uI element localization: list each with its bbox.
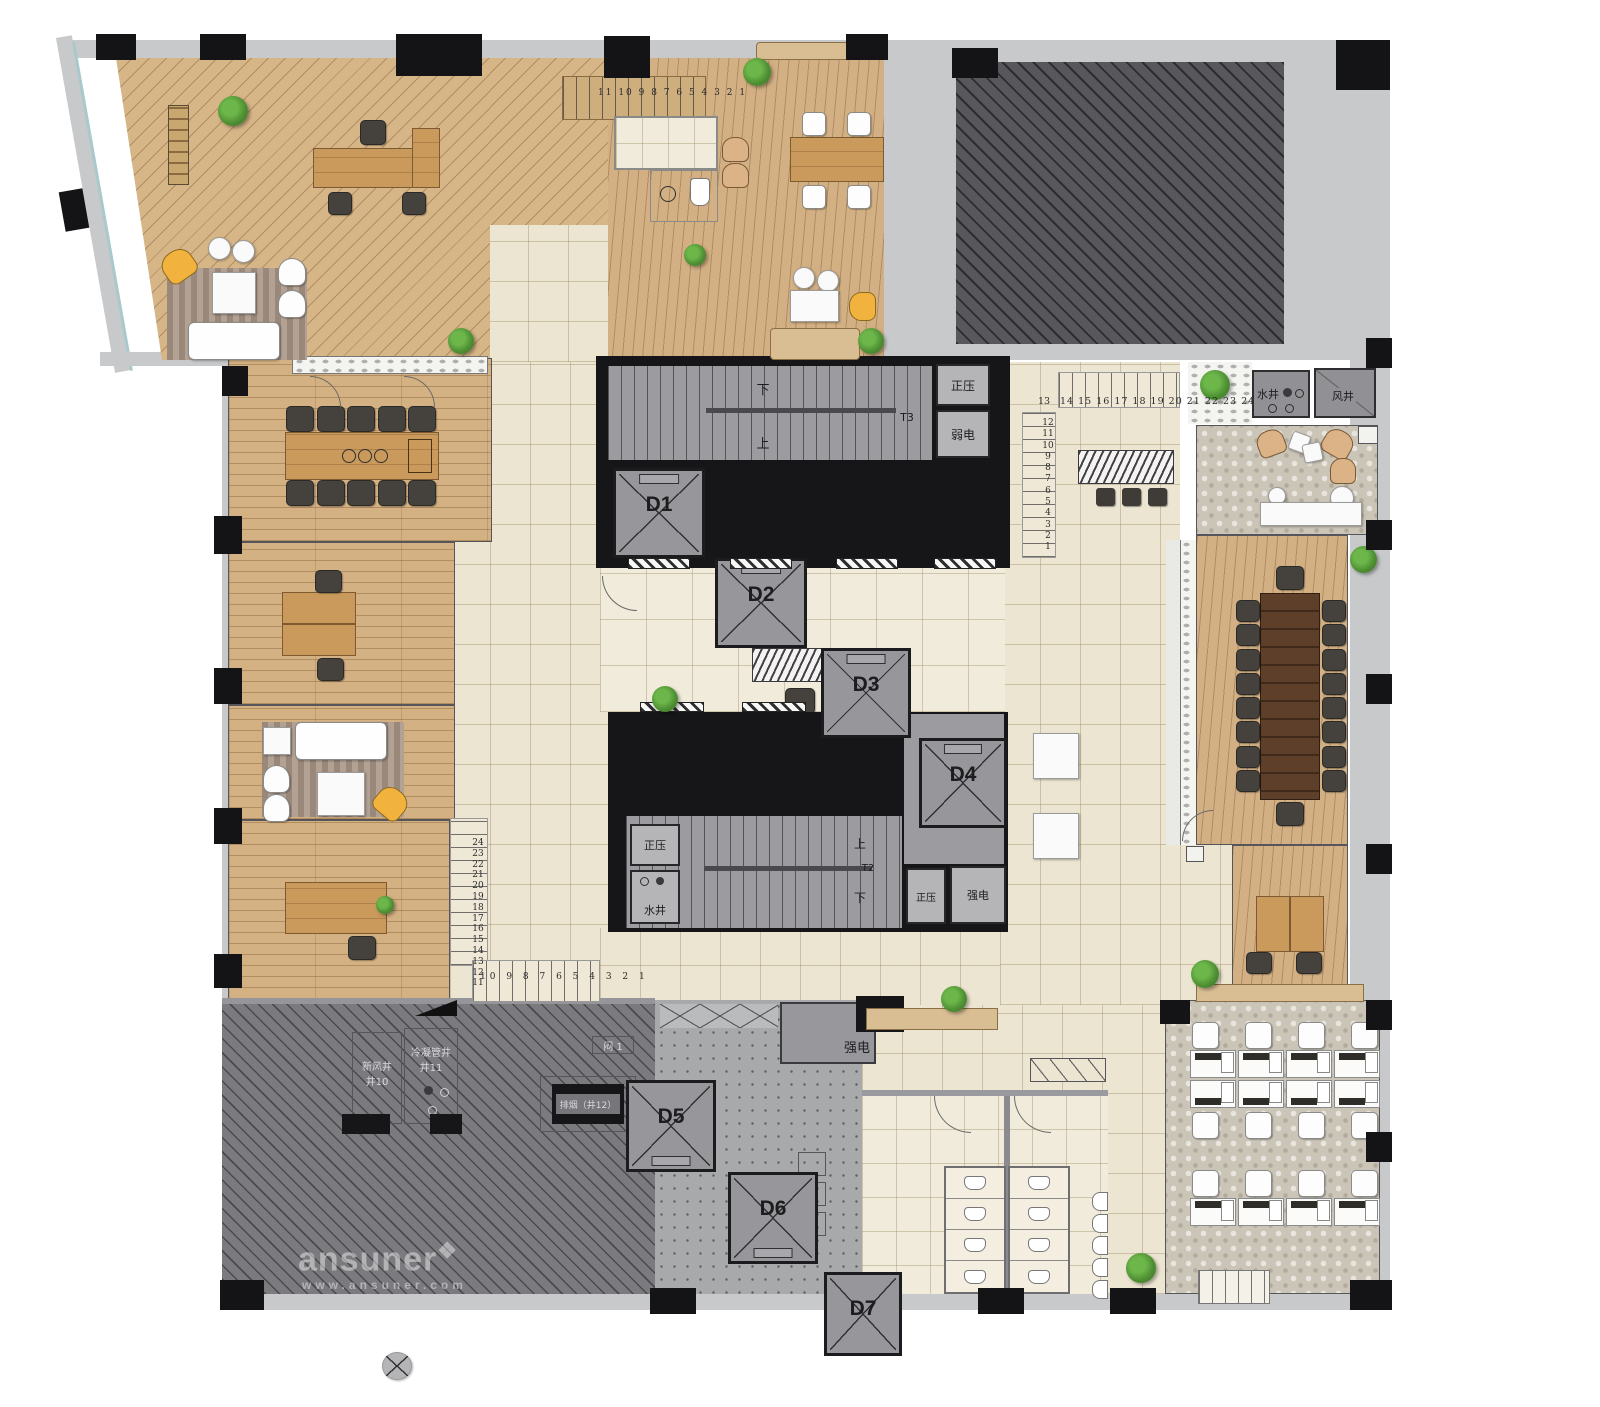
toilet-fixture [1028, 1270, 1050, 1284]
office-desk [285, 882, 387, 934]
column [214, 516, 242, 554]
table-console [408, 439, 432, 473]
basin [660, 186, 676, 202]
marble-coffee-table [790, 290, 839, 322]
hex-table [1301, 441, 1324, 464]
column [1366, 338, 1392, 368]
cabinet-strip [866, 1008, 998, 1030]
toilet-stalls-left [944, 1166, 1006, 1294]
desk-divider [1317, 1200, 1330, 1221]
elevator-d6-label: D6 [760, 1197, 787, 1221]
desk-divider [1221, 1052, 1234, 1073]
wood-chair [722, 137, 749, 162]
chair [1298, 1112, 1325, 1139]
toilet-stall [946, 1199, 1004, 1230]
watermark-brand: ansuner [298, 1240, 437, 1278]
display-table [1033, 813, 1079, 859]
column [200, 34, 246, 60]
stair-t3-up-label: 上 [752, 434, 774, 450]
desk-divider [1269, 1200, 1282, 1221]
monitor [1291, 1098, 1317, 1105]
down-glyph: 下 [854, 889, 866, 906]
column [650, 1288, 696, 1314]
lounge-chair [1330, 458, 1356, 484]
chair [1322, 600, 1346, 622]
toilet-stall [1010, 1230, 1068, 1261]
chair [317, 406, 345, 432]
butterfly-logo-icon: ❖ [437, 1238, 458, 1263]
column [96, 34, 136, 60]
wall-plaque [1186, 846, 1204, 862]
paired-desks [1256, 896, 1324, 952]
desk-divider [1221, 1200, 1234, 1221]
meeting-glass-strip [292, 356, 488, 374]
chair [1236, 746, 1260, 768]
toilet-stall [946, 1230, 1004, 1261]
column [396, 34, 482, 76]
guest-chair [402, 192, 426, 215]
monitor [1243, 1098, 1269, 1105]
workstation-desk [1238, 1198, 1284, 1226]
elevator-d7: D7 [824, 1272, 902, 1356]
workstation-chairs-row2 [1192, 1112, 1378, 1137]
elevator-door [652, 1156, 691, 1166]
stool [1122, 488, 1141, 506]
display-table [1033, 733, 1079, 779]
stair-t2-name: T2 [854, 862, 882, 874]
lounge-chair [278, 258, 306, 286]
column [1366, 844, 1392, 874]
workstation-desk [1190, 1080, 1236, 1108]
meeting-chairs-bottom [286, 480, 436, 506]
toilet-stalls-right [1008, 1166, 1070, 1294]
chair [1322, 649, 1346, 671]
chair [1276, 802, 1304, 826]
toilet-stall [946, 1168, 1004, 1199]
monitor [1339, 1053, 1365, 1060]
guest-chair [328, 192, 352, 215]
chair [1192, 1170, 1219, 1197]
chair [802, 112, 826, 136]
watermark: ansuner❖ [298, 1238, 458, 1279]
chair [1236, 721, 1260, 743]
chair [1236, 770, 1260, 792]
column-block [342, 1114, 390, 1134]
elevator-d1-label: D1 [646, 493, 673, 517]
stair-t2-rail [704, 866, 872, 871]
toilet-fixture [964, 1238, 986, 1252]
side-table-spoked [382, 1352, 412, 1380]
chair [286, 406, 314, 432]
table-cup [342, 449, 356, 463]
wall-plaque [1358, 426, 1378, 444]
column-block [430, 1114, 462, 1134]
plant [218, 96, 248, 126]
water-shaft-label: 水井 [1257, 386, 1279, 402]
cabinet-strip [1196, 984, 1364, 1002]
elevator-d2-label: D2 [748, 583, 775, 607]
stair-t3-name: T3 [892, 410, 922, 424]
plant [448, 328, 474, 354]
monitor [1291, 1053, 1317, 1060]
chair [286, 480, 314, 506]
toilet-stall [1010, 1168, 1068, 1199]
condensate-line1: 冷凝管井 [411, 1044, 451, 1059]
chair [1245, 1170, 1272, 1197]
column [214, 668, 242, 704]
work-table [790, 137, 884, 182]
stair-north-run [562, 76, 706, 120]
chair [378, 480, 406, 506]
stair-east-numbers-vertical: 12 11 10 9 8 7 6 5 4 3 2 1 [1040, 418, 1056, 554]
column [214, 808, 242, 844]
lounge-chair [263, 794, 290, 822]
column [222, 366, 248, 396]
plant [743, 58, 771, 86]
chair [1322, 770, 1346, 792]
column [1366, 1132, 1392, 1162]
hatch-tag: 闷 1 [592, 1036, 634, 1054]
vip-table [317, 772, 365, 816]
desk-divider [1317, 1082, 1330, 1103]
chair [1192, 1112, 1219, 1139]
workstation-chairs-row1 [1192, 1022, 1378, 1047]
stair-t2-up-label: 上 [850, 836, 870, 850]
stair-east-numbers-horizontal: 14 15 16 17 18 19 20 21 22 23 24 [1060, 396, 1255, 407]
chair [1236, 649, 1260, 671]
chair [378, 406, 406, 432]
plant [941, 986, 967, 1012]
door-sill [628, 558, 690, 569]
workstation-desk [1190, 1050, 1236, 1078]
chair [1298, 1170, 1325, 1197]
chair [1322, 673, 1346, 695]
workstation-desk [1286, 1050, 1332, 1078]
monitor [1339, 1098, 1365, 1105]
plant [376, 896, 394, 914]
strong-power-label: 强电 [967, 887, 989, 903]
elevator-door [944, 744, 982, 754]
urinal [1092, 1258, 1108, 1277]
chair [1322, 746, 1346, 768]
room-strong-power-se: 强电 [950, 866, 1006, 924]
watermark-site: www.ansuner.com [302, 1278, 467, 1292]
column [1336, 40, 1390, 90]
plant [1350, 546, 1377, 573]
toilet-fixture [1028, 1238, 1050, 1252]
executive-chair [360, 120, 386, 145]
weak-power-label: 弱电 [951, 426, 975, 443]
plant [652, 686, 678, 712]
air-shaft-label: 风井 [1330, 388, 1356, 404]
round-table [793, 267, 815, 289]
plant [684, 244, 706, 266]
elevator-door [639, 474, 679, 484]
monitor [1291, 1201, 1317, 1208]
monitor [1195, 1053, 1221, 1060]
monitor [1339, 1201, 1365, 1208]
paired-desks [282, 592, 356, 656]
column [220, 1280, 264, 1310]
meeting-chairs-top [286, 406, 436, 432]
pipe-dot [1283, 388, 1292, 397]
side-table-round [208, 237, 231, 260]
chair [847, 112, 871, 136]
room-air-shaft-ne: 风井 [1314, 368, 1376, 418]
toilet-fixture [964, 1207, 986, 1221]
elevator-d4-label: D4 [950, 763, 977, 787]
toilet-fixture [964, 1176, 986, 1190]
room-water-shaft-ne: 水井 [1252, 370, 1310, 418]
hatch-tag-text: 闷 1 [603, 1038, 623, 1053]
elevator-d4: D4 [919, 738, 1007, 828]
workstation-desk [1334, 1198, 1380, 1226]
urinal [1092, 1236, 1108, 1255]
urinal [1092, 1214, 1108, 1233]
stool [1148, 488, 1167, 506]
plant [858, 328, 884, 354]
monitor [1195, 1201, 1221, 1208]
desk-divider [1269, 1052, 1282, 1073]
executive-desk-return [412, 128, 440, 188]
desk-divider [1269, 1082, 1282, 1103]
stair-t2-down-label: 下 [850, 890, 870, 904]
plant [1191, 960, 1219, 988]
console-table [1260, 502, 1362, 526]
cabinet-x [1030, 1058, 1106, 1082]
chair [1351, 1170, 1378, 1197]
plant [1126, 1253, 1156, 1283]
desk-divider [1221, 1082, 1234, 1103]
stair-east-corner-number: 13 [1038, 396, 1050, 407]
chair [317, 658, 344, 681]
fresh-air-line1: 新风井 [362, 1058, 392, 1073]
room-positive-pressure-n: 正压 [936, 364, 990, 406]
conference-chairs-right [1322, 600, 1344, 792]
chair [1298, 1022, 1325, 1049]
door-sill [742, 702, 806, 712]
door-sill [934, 558, 996, 569]
chair [1296, 952, 1322, 974]
column [1366, 674, 1392, 704]
elevator-d5-label: D5 [658, 1105, 685, 1129]
chair [802, 185, 826, 209]
toilet-fixture [1028, 1176, 1050, 1190]
fresh-air-shaft-label: 新风井井10 [352, 1056, 402, 1090]
pipe-dot [656, 877, 664, 885]
column [1110, 1288, 1156, 1314]
bathroom [614, 116, 718, 170]
elevator-door [847, 654, 886, 664]
monitor [1243, 1053, 1269, 1060]
chair [347, 406, 375, 432]
column [1366, 520, 1392, 550]
chair [1236, 600, 1260, 622]
toilet-fixture [964, 1270, 986, 1284]
column [846, 34, 888, 60]
conference-glass-wall [1166, 540, 1181, 845]
stair-t3-rail [706, 408, 896, 413]
condensate-line2: 井11 [420, 1059, 443, 1074]
wood-chair [722, 163, 749, 188]
workstation-desk [1286, 1080, 1332, 1108]
room-positive-pressure-sw: 正压 [630, 824, 680, 866]
t3-glyph: T3 [900, 411, 914, 424]
workstation-desk [1238, 1050, 1284, 1078]
conference-table [1260, 593, 1320, 800]
chair [1322, 721, 1346, 743]
desk-divider [1365, 1052, 1378, 1073]
monitor [1195, 1098, 1221, 1105]
stair-north-numbers: 11 10 9 8 7 6 5 4 3 2 1 [598, 88, 747, 98]
strong-power-label: 强电 [844, 1037, 870, 1056]
workstation-desk [1334, 1080, 1380, 1108]
room-water-shaft-sw: 水井 [630, 870, 680, 924]
column [1350, 1280, 1392, 1310]
workstation-desk [1286, 1198, 1332, 1226]
brace-strip [660, 1004, 778, 1028]
chair [1236, 697, 1260, 719]
column [978, 1288, 1024, 1314]
elevator-d3: D3 [821, 648, 911, 738]
elevator-d1: D1 [613, 468, 705, 558]
column [1366, 1000, 1392, 1030]
water-shaft-label: 水井 [632, 902, 678, 918]
down-glyph: 下 [756, 379, 769, 398]
workstation-desk [1190, 1198, 1236, 1226]
column [952, 48, 998, 78]
positive-pressure-label: 正压 [916, 889, 936, 904]
side-cabinet [263, 727, 291, 755]
workstation-desks-row1 [1190, 1050, 1380, 1078]
stool [1096, 488, 1115, 506]
office-floor-plan: 正压 弱电 D1 D2 D3 D4 D5 D6 D7 正压 水井 正压 强电 下… [0, 0, 1600, 1407]
chair [1246, 952, 1272, 974]
workstation-desk [1334, 1050, 1380, 1078]
vip-sofa [295, 722, 387, 760]
chair [1322, 624, 1346, 646]
desk-divider [1317, 1052, 1330, 1073]
lounge-chair [278, 290, 306, 318]
toilet-fixture [690, 178, 710, 206]
stair-se-small [1198, 1270, 1270, 1304]
elevator-d7-label: D7 [850, 1297, 877, 1321]
elevator-d3-label: D3 [853, 673, 880, 697]
elevator-d2: D2 [715, 558, 807, 648]
table-cup [374, 449, 388, 463]
chair [1322, 697, 1346, 719]
accent-armchair [849, 292, 876, 321]
chair [1236, 673, 1260, 695]
ladder-shelf [168, 105, 189, 185]
chair [347, 480, 375, 506]
round-table [817, 270, 839, 292]
pipe-dot [424, 1086, 433, 1095]
column [1160, 1000, 1190, 1024]
fresh-air-line2: 井10 [366, 1073, 389, 1088]
toilet-fixture [1028, 1207, 1050, 1221]
smoke-exhaust-text: 排烟（井12） [560, 1098, 616, 1111]
pipe-circle [1285, 404, 1294, 413]
chair [348, 936, 376, 960]
positive-pressure-label: 正压 [951, 377, 975, 394]
pipe-circle [1295, 389, 1304, 398]
conference-chairs-left [1236, 600, 1258, 792]
desk-divider [1365, 1200, 1378, 1221]
chair [1236, 624, 1260, 646]
chair [847, 185, 871, 209]
door-sill [730, 558, 792, 569]
pipe-circle [1268, 404, 1277, 413]
sofa [188, 322, 280, 360]
elevator-d5: D5 [626, 1080, 716, 1172]
stair-west-numbers-vertical: 24 23 22 21 20 19 18 17 16 15 14 13 12 1… [468, 838, 488, 989]
t2-glyph: T2 [862, 863, 874, 874]
toilet-stall [1010, 1199, 1068, 1230]
chair [315, 570, 342, 593]
stair-t3-down-label: 下 [752, 380, 774, 396]
urinal [1092, 1192, 1108, 1211]
chair [408, 406, 436, 432]
chair [1276, 566, 1304, 590]
room-positive-pressure-se: 正压 [906, 868, 946, 924]
corridor-northwest [488, 225, 608, 362]
up-glyph: 上 [756, 433, 769, 452]
positive-pressure-label: 正压 [644, 837, 666, 853]
pipe-circle [640, 877, 649, 886]
monitor [1243, 1201, 1269, 1208]
column [214, 954, 242, 988]
column [604, 36, 650, 78]
table-cup [358, 449, 372, 463]
workstation-desks-row3 [1190, 1198, 1380, 1226]
workstation-desk [1238, 1080, 1284, 1108]
pipe-circle [440, 1088, 449, 1097]
elevator-d6: D6 [728, 1172, 818, 1264]
up-glyph: 上 [854, 835, 866, 852]
room-weak-power: 弱电 [936, 410, 990, 458]
ne-unbuilt-area [956, 62, 1284, 344]
chair [1245, 1112, 1272, 1139]
workstation-chairs-row3 [1192, 1170, 1378, 1195]
meeting-table [285, 432, 439, 480]
elevator-door [754, 1248, 793, 1258]
condensate-shaft-label: 冷凝管井井11 [404, 1042, 458, 1076]
desk-divider [1365, 1082, 1378, 1103]
coffee-table [212, 272, 256, 314]
chair [1245, 1022, 1272, 1049]
sofa [770, 328, 860, 360]
side-table-round [232, 240, 255, 263]
chair [1192, 1022, 1219, 1049]
door-sill [836, 558, 898, 569]
chair [408, 480, 436, 506]
lounge-chair [263, 765, 290, 793]
watermark-url: www.ansuner.com [302, 1278, 467, 1292]
chair [317, 480, 345, 506]
pantry-counter [1078, 450, 1174, 484]
urinal [1092, 1280, 1108, 1299]
stair-west-numbers-horizontal: 10 9 8 7 6 5 4 3 2 1 [480, 972, 649, 982]
smoke-exhaust-label: 排烟（井12） [556, 1094, 620, 1114]
workstation-desks-row2 [1190, 1080, 1380, 1108]
conference-pebble-strip [1180, 540, 1196, 845]
